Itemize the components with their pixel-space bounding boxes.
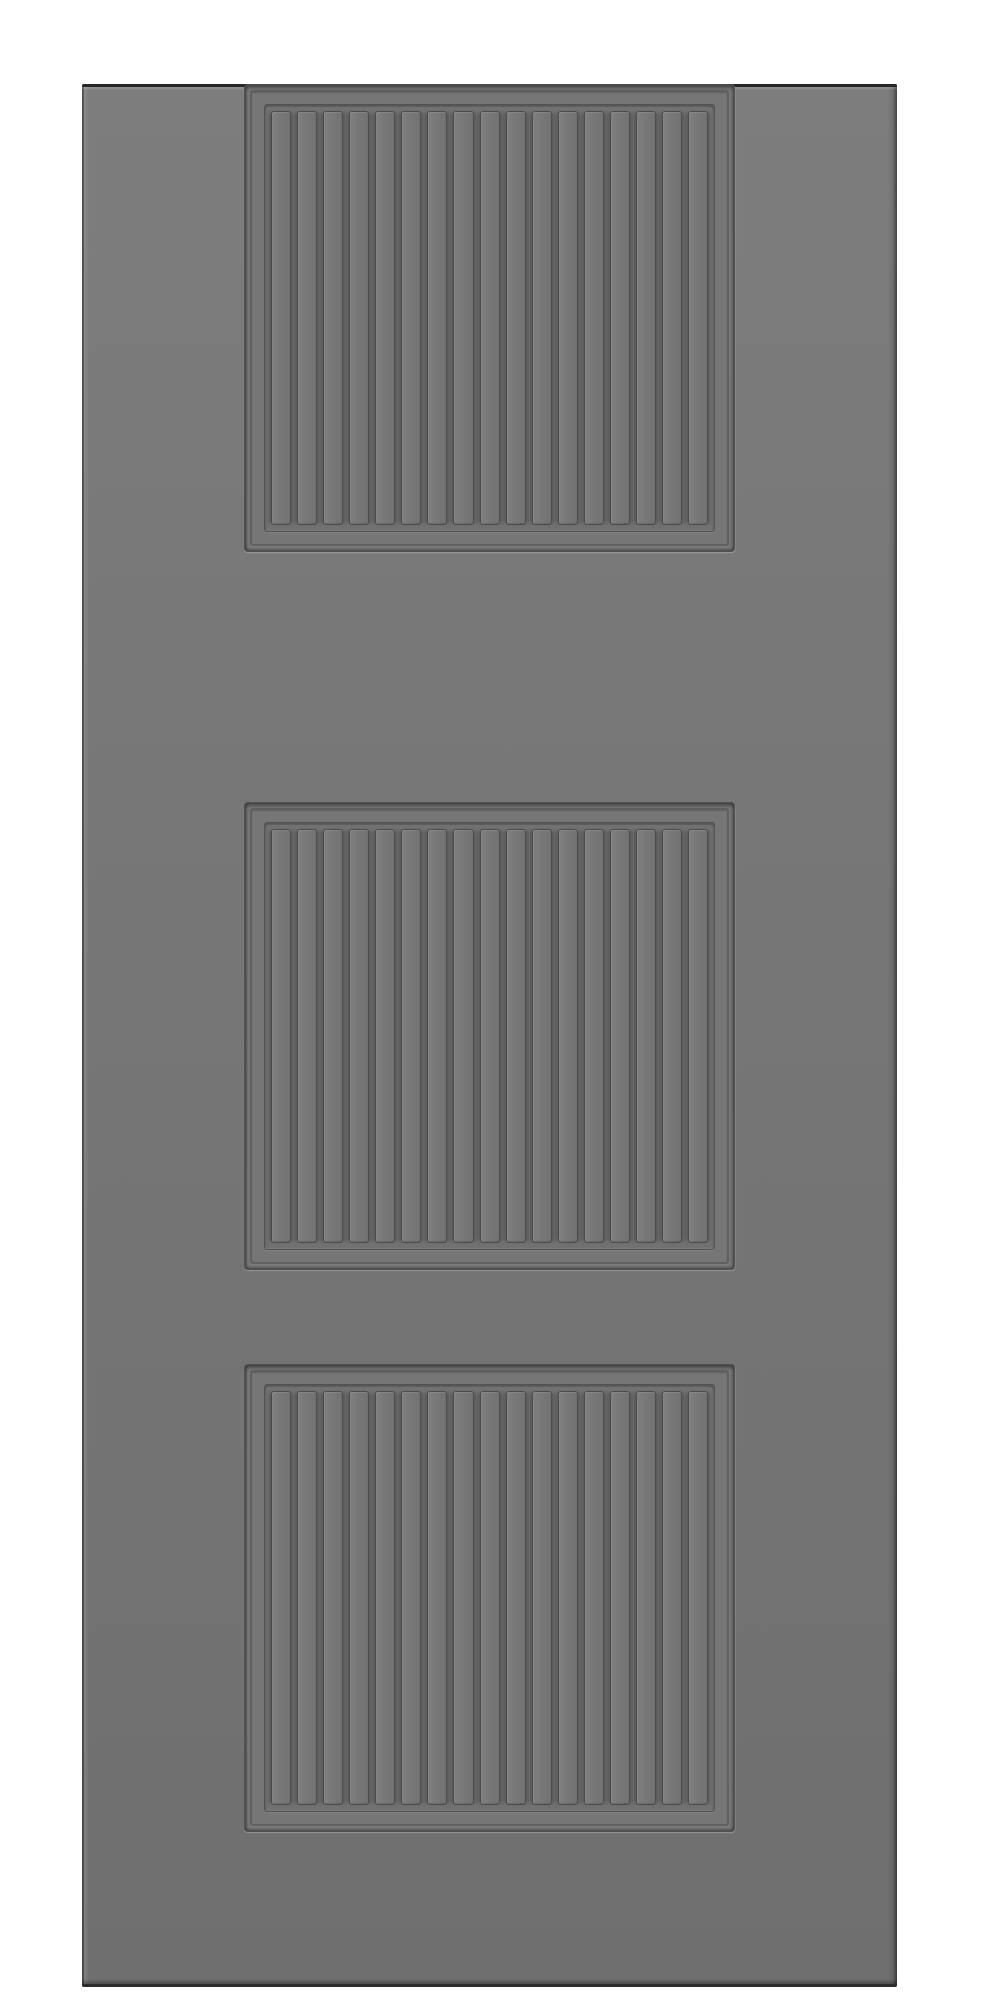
slat <box>297 111 317 525</box>
door-panel-top <box>244 802 735 1270</box>
slat <box>297 1391 317 1805</box>
slat <box>532 829 552 1243</box>
slat <box>636 1391 656 1805</box>
slat <box>401 111 421 525</box>
slat <box>271 1391 291 1805</box>
panel-recessed-field <box>264 822 715 1250</box>
slat <box>636 829 656 1243</box>
slat <box>506 829 526 1243</box>
slat-row <box>267 1387 712 1809</box>
slat <box>349 829 369 1243</box>
slat <box>558 111 578 525</box>
slat <box>584 829 604 1243</box>
slat <box>323 1391 343 1805</box>
slat <box>323 111 343 525</box>
slat <box>506 111 526 525</box>
slat <box>532 1391 552 1805</box>
slat <box>271 111 291 525</box>
slat <box>349 1391 369 1805</box>
slat-row <box>267 107 712 529</box>
slat <box>427 111 447 525</box>
slat <box>480 1391 500 1805</box>
slat <box>375 1391 395 1805</box>
slat-row <box>267 825 712 1247</box>
slat <box>688 829 708 1243</box>
slat <box>610 829 630 1243</box>
slat <box>688 111 708 525</box>
slat <box>662 1391 682 1805</box>
slat <box>584 111 604 525</box>
slat <box>558 1391 578 1805</box>
slat <box>349 111 369 525</box>
slat <box>271 829 291 1243</box>
slat <box>506 1391 526 1805</box>
slat <box>375 111 395 525</box>
slat <box>480 829 500 1243</box>
slat <box>662 111 682 525</box>
slat <box>453 111 473 525</box>
slat <box>427 829 447 1243</box>
door-panel-middle <box>244 1364 735 1832</box>
background <box>0 0 983 2002</box>
door-panel-bottom <box>244 84 735 552</box>
slat <box>401 1391 421 1805</box>
slat <box>453 1391 473 1805</box>
slat <box>401 829 421 1243</box>
slat <box>480 111 500 525</box>
slat <box>636 111 656 525</box>
door-leaf <box>82 84 897 1987</box>
slat <box>323 829 343 1243</box>
slat <box>375 829 395 1243</box>
slat <box>558 829 578 1243</box>
panel-recessed-field <box>264 104 715 532</box>
slat <box>610 111 630 525</box>
panel-recessed-field <box>264 1384 715 1812</box>
slat <box>610 1391 630 1805</box>
slat <box>427 1391 447 1805</box>
slat <box>453 829 473 1243</box>
slat <box>297 829 317 1243</box>
slat <box>662 829 682 1243</box>
slat <box>584 1391 604 1805</box>
slat <box>688 1391 708 1805</box>
slat <box>532 111 552 525</box>
